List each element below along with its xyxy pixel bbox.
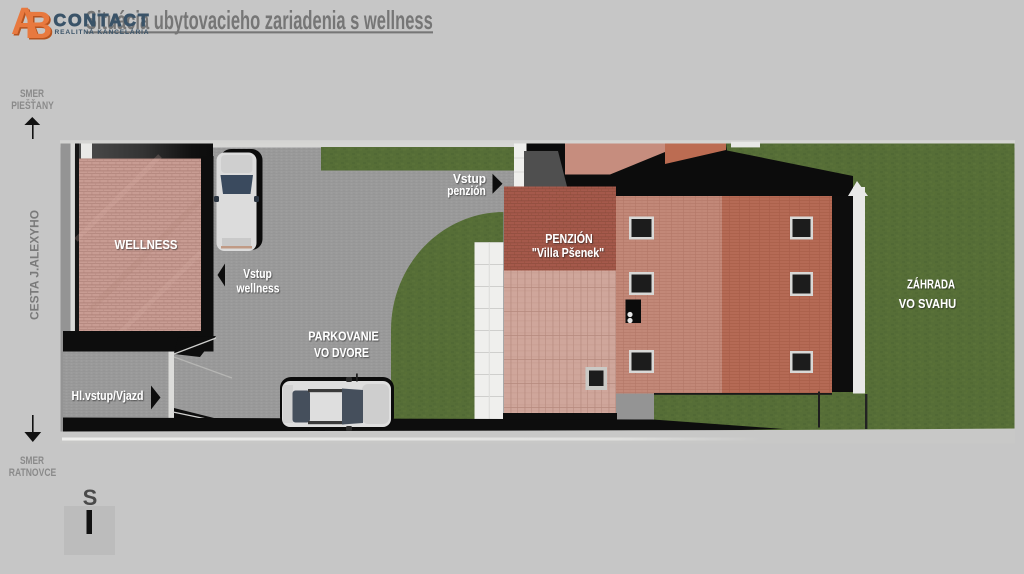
svg-text:ZÁHRADA: ZÁHRADA bbox=[907, 277, 955, 292]
svg-text:REALITNÁ KANCELÁRIA: REALITNÁ KANCELÁRIA bbox=[55, 27, 150, 36]
svg-text:SMER: SMER bbox=[20, 88, 44, 100]
svg-text:penzión: penzión bbox=[447, 184, 486, 198]
svg-text:CESTA J.ALEXYHO: CESTA J.ALEXYHO bbox=[28, 210, 42, 320]
svg-text:PARKOVANIE: PARKOVANIE bbox=[308, 329, 379, 344]
svg-text:Vstup: Vstup bbox=[243, 267, 272, 281]
svg-text:VO SVAHU: VO SVAHU bbox=[899, 297, 957, 311]
svg-text:PENZIÓN: PENZIÓN bbox=[545, 231, 593, 246]
svg-text:"Villa Pšenek": "Villa Pšenek" bbox=[532, 246, 605, 260]
svg-text:PIEŠŤANY: PIEŠŤANY bbox=[11, 99, 54, 112]
svg-text:B: B bbox=[25, 5, 52, 47]
svg-text:wellness: wellness bbox=[236, 282, 280, 296]
svg-text:S: S bbox=[83, 485, 98, 510]
svg-text:RATNOVCE: RATNOVCE bbox=[9, 467, 57, 479]
svg-text:VO DVORE: VO DVORE bbox=[314, 345, 369, 360]
svg-text:SMER: SMER bbox=[20, 455, 44, 467]
svg-text:Hl.vstup/Vjazd: Hl.vstup/Vjazd bbox=[72, 389, 144, 403]
svg-text:WELLNESS: WELLNESS bbox=[115, 237, 178, 252]
svg-text:CONTACT: CONTACT bbox=[54, 10, 151, 30]
